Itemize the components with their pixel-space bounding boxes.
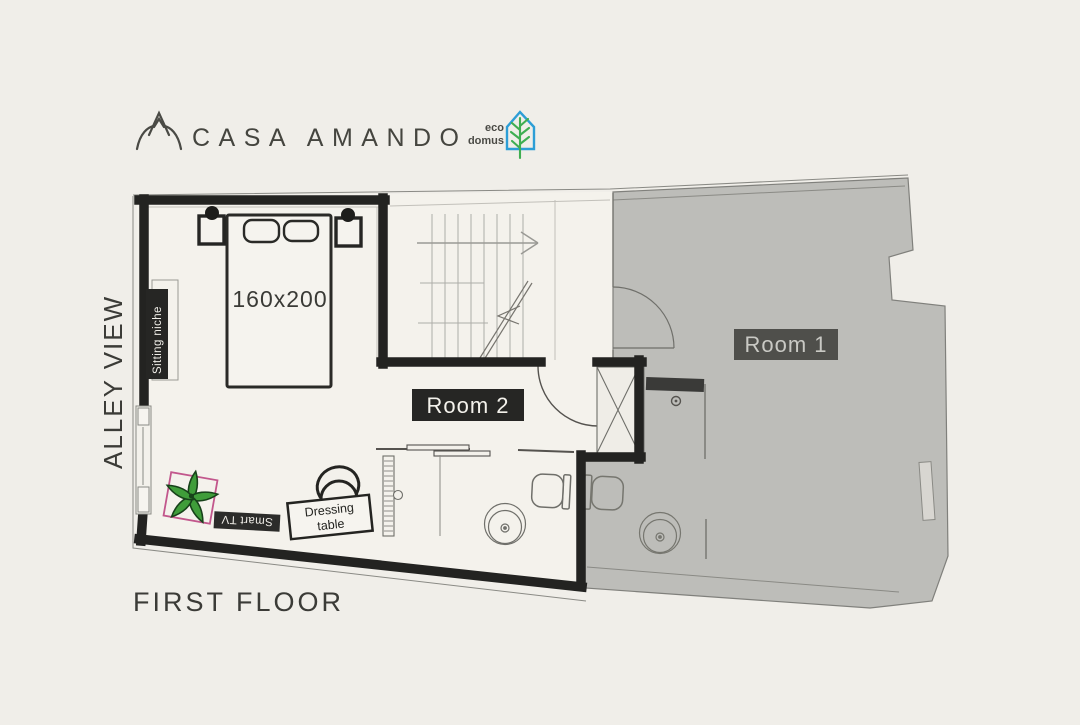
floor-plan-page: CASA AMANDO eco domus bbox=[0, 0, 1080, 720]
shaft-icon bbox=[597, 367, 639, 453]
room2-floor-area bbox=[137, 192, 644, 588]
domus-word: domus bbox=[468, 135, 504, 147]
sitting-niche-badge: Sitting niche bbox=[146, 289, 168, 379]
svg-text:Sitting niche: Sitting niche bbox=[152, 306, 164, 374]
svg-text:Room 1: Room 1 bbox=[744, 332, 827, 357]
sliding-door-icon bbox=[407, 445, 469, 450]
svg-text:Room 2: Room 2 bbox=[426, 393, 509, 418]
room1-label: Room 1 bbox=[734, 329, 838, 360]
room2-label: Room 2 bbox=[412, 389, 524, 421]
alley-view-label: ALLEY VIEW bbox=[98, 295, 128, 469]
lamp-icon bbox=[341, 208, 355, 222]
toilet-room2-icon bbox=[531, 473, 571, 509]
brand-title: CASA AMANDO bbox=[192, 124, 468, 152]
pillow-icon bbox=[244, 220, 279, 242]
eco-word: eco bbox=[485, 122, 504, 134]
bed-size-label: 160x200 bbox=[232, 286, 327, 312]
first-floor-label: FIRST FLOOR bbox=[133, 587, 344, 617]
lamp-icon bbox=[205, 206, 219, 220]
pillow-icon bbox=[284, 221, 318, 241]
floor-plan-canvas: CASA AMANDO eco domus bbox=[0, 0, 1080, 720]
svg-text:table: table bbox=[317, 517, 345, 534]
smart-tv-badge: Smart TV bbox=[214, 511, 281, 531]
room2-window bbox=[136, 406, 151, 514]
toilet-room1-icon bbox=[583, 475, 624, 511]
dressing-table: Dressing table bbox=[287, 495, 372, 539]
bed: 160x200 bbox=[227, 215, 331, 387]
